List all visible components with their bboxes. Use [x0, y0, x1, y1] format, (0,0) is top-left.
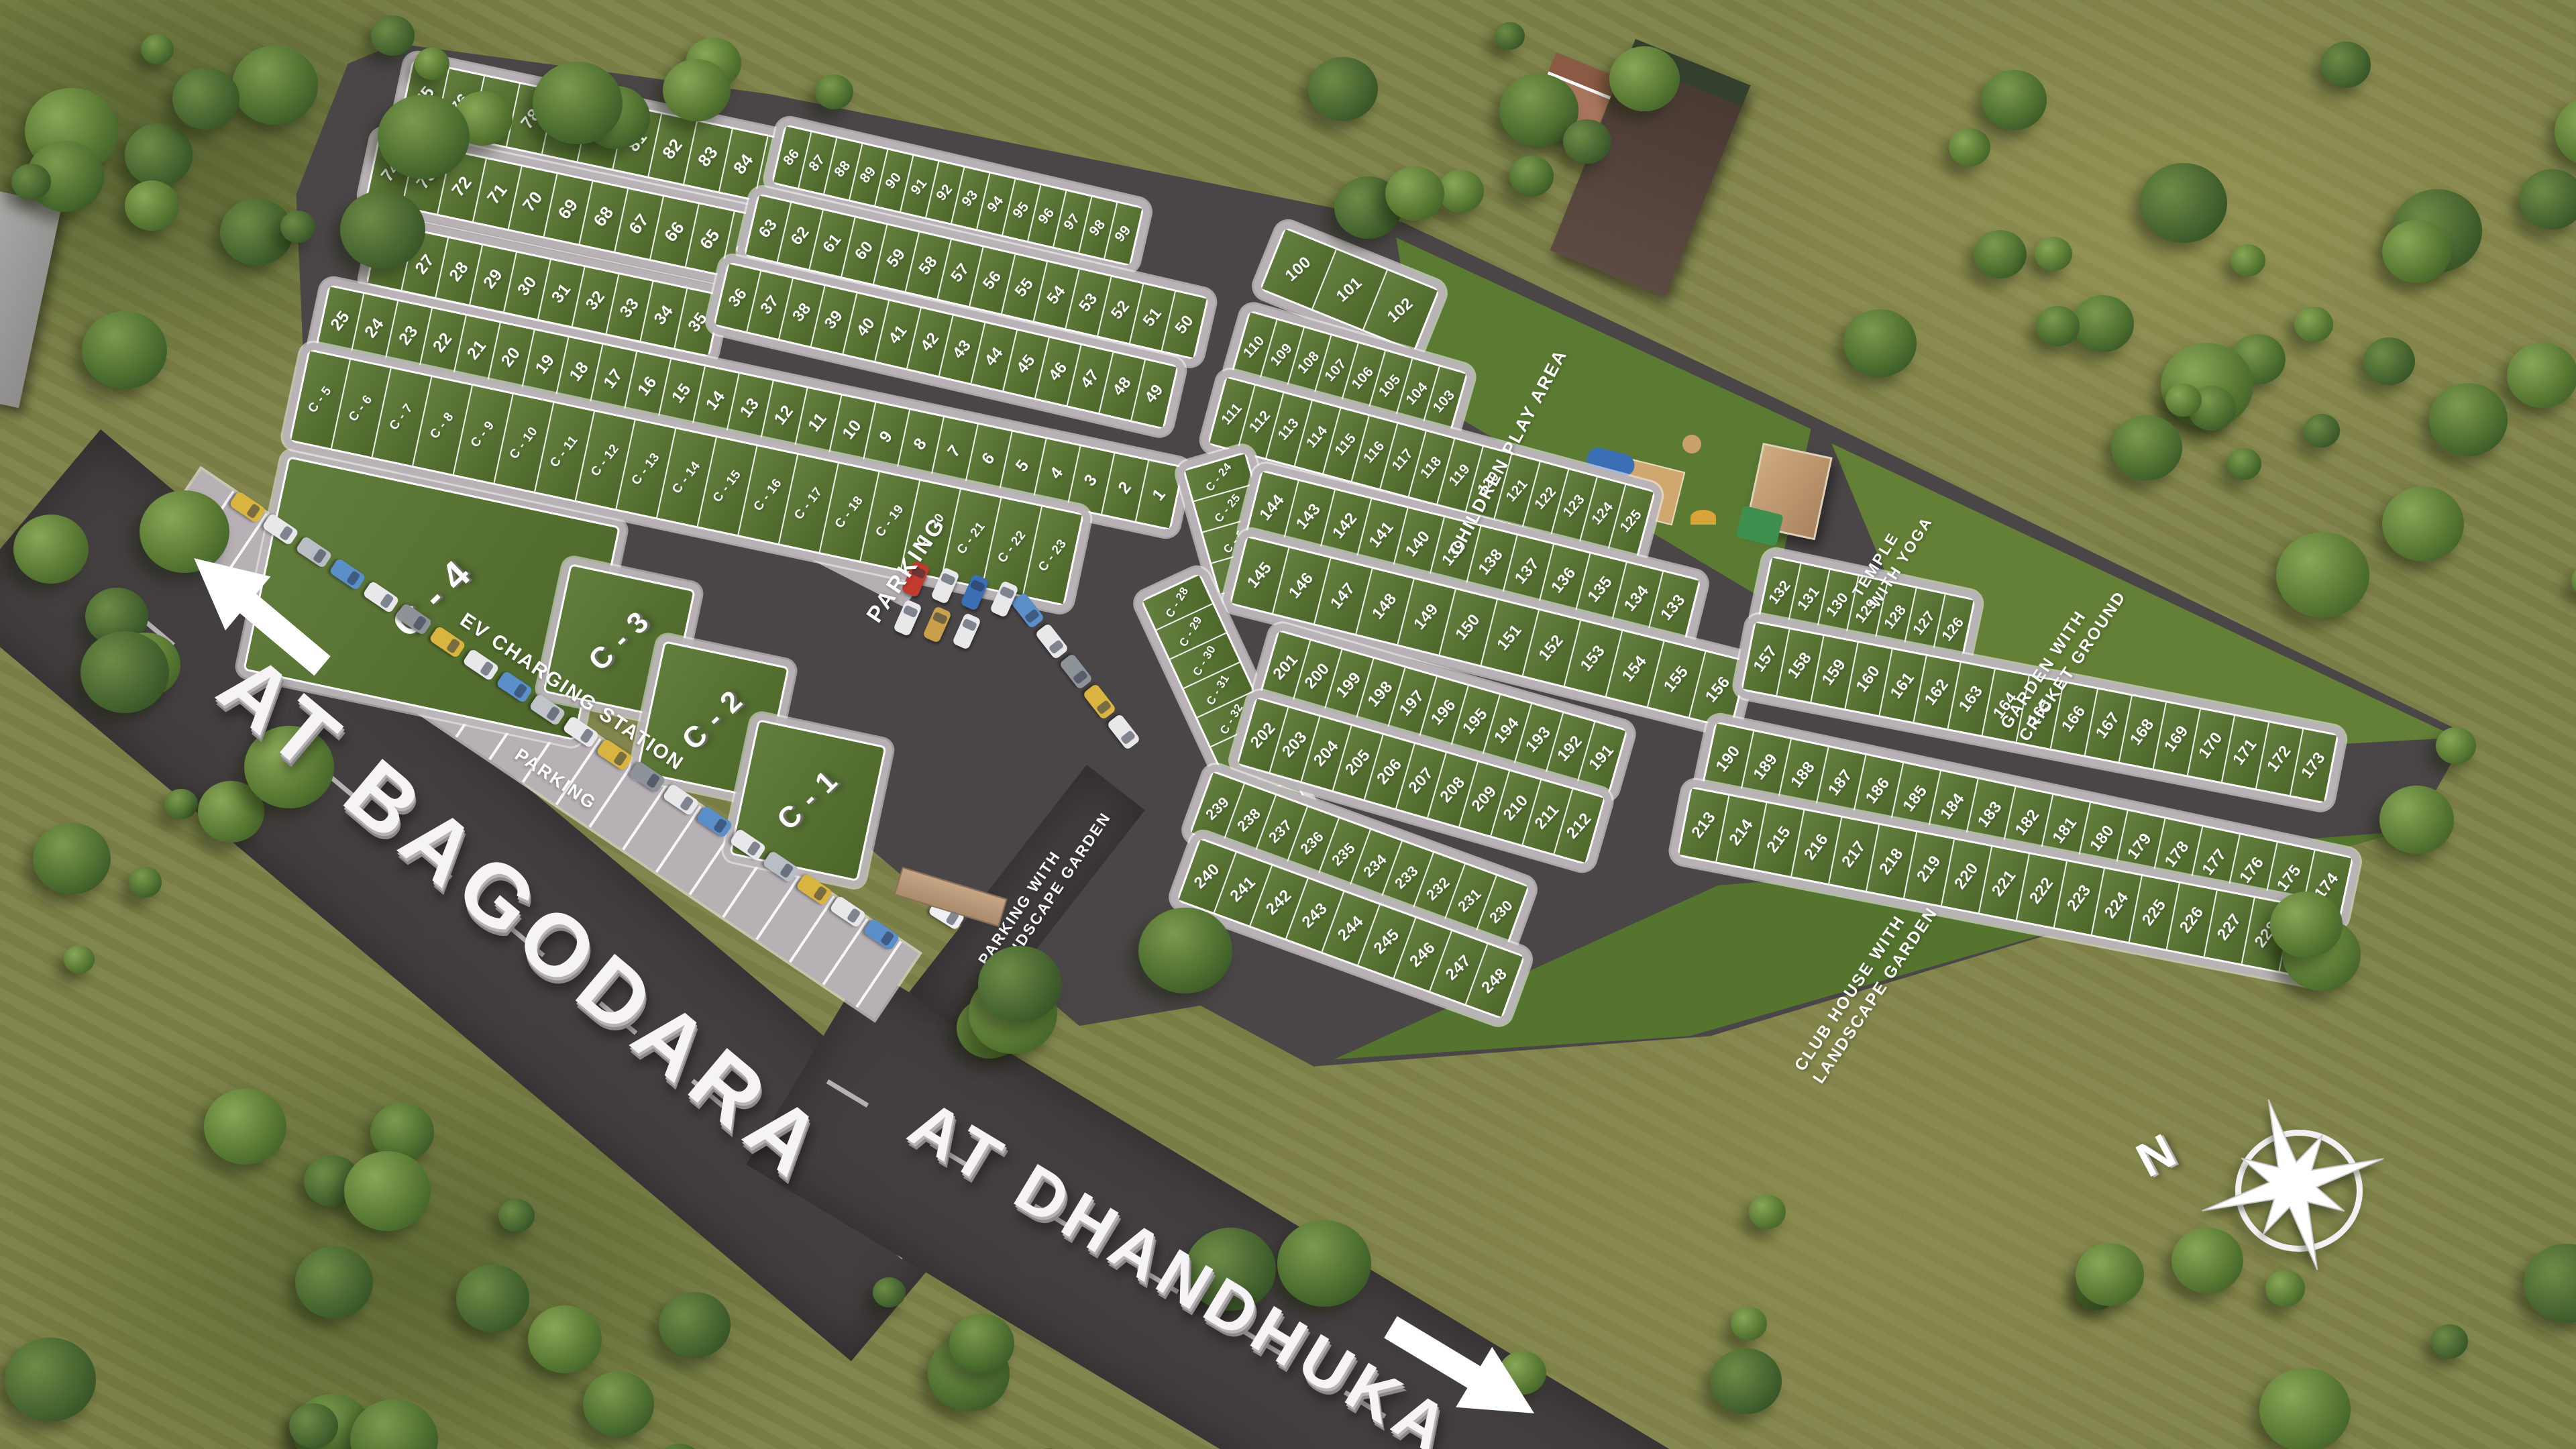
plot-number: 111 — [1218, 400, 1246, 429]
tree — [2294, 307, 2333, 342]
plot-number: 1 — [1148, 485, 1170, 504]
plot-number: C - 10 — [506, 424, 541, 462]
plot-number: 168 — [2127, 715, 2158, 749]
plot-number: 178 — [2161, 837, 2194, 871]
plot-number: 166 — [2058, 702, 2090, 736]
plot-number: 51 — [1139, 304, 1165, 330]
plot-number: 41 — [885, 321, 911, 347]
plot-number: 9 — [875, 427, 897, 446]
plot-number: 82 — [658, 135, 687, 164]
tree — [1949, 128, 1990, 166]
plot-number: 60 — [851, 237, 877, 264]
plot-number: 154 — [1619, 652, 1651, 686]
plot-c-1-label: C - 1 — [771, 764, 845, 837]
tree — [2076, 1243, 2144, 1306]
plot-number: 18 — [566, 358, 593, 385]
tree — [1711, 1348, 1782, 1413]
tree — [1438, 170, 1484, 213]
tree — [125, 180, 179, 231]
tree — [1749, 1195, 1786, 1228]
plot-number: 180 — [2086, 821, 2118, 855]
plot-number: 235 — [1328, 839, 1359, 869]
plot-number: 87 — [806, 152, 829, 174]
tree — [1495, 22, 1525, 50]
plot-number: 118 — [1417, 453, 1445, 482]
plot-number: 246 — [1406, 938, 1439, 971]
plot-number: 15 — [668, 380, 696, 407]
plot-number: 119 — [1446, 461, 1474, 489]
plot-number: 245 — [1371, 925, 1403, 958]
plot-number: C - 7 — [387, 401, 417, 433]
tree — [80, 631, 169, 713]
plot-number: 190 — [1713, 742, 1745, 775]
plot-number: 132 — [1765, 576, 1794, 607]
tree — [82, 311, 167, 390]
tree — [33, 823, 111, 894]
plot-number: 187 — [1825, 765, 1857, 799]
plot-number: 37 — [757, 292, 783, 318]
tree — [2072, 295, 2134, 352]
tree — [2140, 163, 2227, 244]
plot-number: 135 — [1585, 572, 1617, 606]
plot-number: 28 — [445, 258, 473, 285]
plot-number: 243 — [1298, 899, 1331, 932]
plot-number: 141 — [1366, 518, 1398, 551]
tree — [232, 46, 318, 125]
plot-number: 4 — [1046, 463, 1067, 482]
plot-number: 92 — [934, 181, 957, 204]
plot-number: 114 — [1303, 423, 1331, 451]
plot-number: C - 25 — [1212, 491, 1244, 525]
plot-number: 97 — [1061, 211, 1084, 233]
plot-number: 196 — [1428, 696, 1460, 729]
plot-number: 230 — [1486, 896, 1517, 926]
plot-number: 155 — [1660, 663, 1693, 696]
plot-number: 220 — [1951, 859, 1982, 893]
plot-number: 53 — [1075, 289, 1102, 315]
plot-number: 206 — [1373, 755, 1406, 788]
plot-number: 236 — [1297, 827, 1328, 857]
plot-number: 115 — [1332, 431, 1360, 459]
tree — [350, 1399, 438, 1449]
plot-number: 213 — [1688, 808, 1719, 842]
tree — [2231, 244, 2265, 276]
tree — [2111, 415, 2182, 480]
plot-number: 184 — [1937, 790, 1969, 823]
plot-number: 14 — [702, 386, 729, 414]
plot-number: 30 — [514, 272, 541, 300]
tree — [663, 59, 731, 121]
plot-number: 233 — [1391, 862, 1422, 892]
plot-number: 56 — [979, 267, 1006, 293]
plot-number: 189 — [1750, 750, 1782, 784]
plot-number: 238 — [1234, 804, 1265, 835]
plot-number: 47 — [1077, 366, 1103, 392]
plot-number: 212 — [1563, 810, 1596, 843]
plot-number: 207 — [1405, 764, 1438, 798]
plot-number: 200 — [1301, 659, 1334, 693]
plot-number: 8 — [910, 434, 931, 453]
plot-number: 69 — [554, 195, 583, 223]
plot-number: 71 — [483, 180, 512, 209]
plot-number: 143 — [1293, 500, 1325, 533]
plot-number: 5 — [1012, 455, 1034, 475]
plot-number: 221 — [1988, 867, 2020, 900]
plot-number: 176 — [2236, 853, 2268, 887]
plot-number: 145 — [1244, 559, 1276, 592]
plot-number: 86 — [781, 146, 804, 168]
plot-number: C - 11 — [547, 433, 581, 470]
plot-number: 170 — [2195, 729, 2226, 762]
plot-number: 244 — [1334, 912, 1367, 945]
tree — [1138, 908, 1232, 994]
plot-number: 215 — [1763, 823, 1794, 857]
tree — [2382, 486, 2464, 562]
plot-number: 148 — [1368, 590, 1401, 623]
plot-number: 239 — [1202, 793, 1233, 823]
plot-number: 101 — [1333, 273, 1366, 306]
plot-number: 40 — [853, 314, 879, 340]
plot-number: 179 — [2124, 829, 2156, 863]
tree — [2520, 169, 2576, 229]
plot-number: 16 — [634, 372, 661, 400]
plot-number: 171 — [2229, 735, 2261, 769]
plot-number: 195 — [1459, 704, 1492, 738]
plot-number: 99 — [1112, 222, 1135, 245]
tree — [456, 1265, 529, 1332]
tree — [1385, 166, 1444, 221]
plot-number: 121 — [1503, 476, 1531, 505]
plot-number: 113 — [1275, 415, 1303, 443]
plot-number: 21 — [463, 336, 490, 364]
plot-number: 234 — [1360, 851, 1391, 881]
tree — [125, 123, 193, 186]
plot-number: 48 — [1109, 373, 1135, 399]
plot-number: 61 — [819, 230, 845, 256]
plot-number: 175 — [2273, 861, 2306, 895]
plot-number: 124 — [1589, 499, 1617, 528]
tree — [657, 1444, 703, 1449]
tree — [533, 62, 623, 144]
plot-number: 237 — [1265, 816, 1296, 846]
tree — [2431, 1324, 2468, 1358]
tree — [2265, 1270, 2306, 1307]
tree — [528, 1305, 602, 1374]
plot-number: 216 — [1801, 830, 1832, 863]
tree — [1982, 70, 2047, 130]
plot-number: 137 — [1511, 554, 1544, 588]
plot-number: 39 — [820, 307, 847, 333]
tree — [1509, 156, 1554, 197]
tree — [140, 490, 229, 573]
plot-number: 65 — [696, 225, 724, 254]
tree — [2259, 1368, 2351, 1449]
tree — [2507, 343, 2576, 409]
plot-number: 42 — [917, 329, 943, 355]
plot-number: 248 — [1478, 964, 1511, 997]
plot-number: 57 — [947, 260, 973, 286]
plot-number: 62 — [787, 223, 813, 249]
plot-number: 127 — [1909, 607, 1939, 638]
plot-number: 34 — [650, 301, 678, 329]
plot-number: 240 — [1191, 859, 1224, 892]
tree — [1843, 309, 1917, 377]
tree — [1609, 46, 1680, 111]
plot-number: 35 — [684, 309, 712, 336]
plot-number: C - 22 — [995, 528, 1029, 566]
plot-number: 88 — [832, 158, 855, 180]
plot-number: 136 — [1548, 563, 1580, 597]
tree — [659, 1292, 731, 1358]
plot-number: 210 — [1499, 791, 1532, 824]
plot-number: 2 — [1114, 478, 1136, 497]
plot-number: C - 12 — [588, 441, 623, 480]
plot-number: 227 — [2213, 910, 2245, 944]
tree — [289, 1403, 338, 1448]
plot-number: 55 — [1011, 274, 1037, 301]
plot-number: 199 — [1332, 668, 1365, 702]
plot-number: 43 — [949, 336, 975, 362]
tree — [2555, 97, 2576, 166]
plot-number: 50 — [1171, 311, 1197, 337]
plot-number: 24 — [361, 314, 388, 341]
tree — [2035, 237, 2072, 271]
plot-number: 110 — [1240, 333, 1269, 361]
plot-number: 152 — [1536, 631, 1568, 665]
plot-number: 52 — [1108, 297, 1134, 323]
plot-number: 122 — [1532, 484, 1560, 513]
plot-number: 173 — [2298, 749, 2329, 782]
plot-number: 193 — [1522, 722, 1555, 756]
tree — [2165, 384, 2201, 417]
plot-number: C - 6 — [346, 392, 376, 425]
plot-number: 66 — [660, 217, 689, 246]
plot-number: 104 — [1403, 379, 1431, 408]
tree — [498, 1199, 535, 1232]
tree — [11, 164, 51, 200]
tree — [141, 34, 173, 64]
plot-number: C - 21 — [954, 519, 988, 557]
tree — [1308, 57, 1378, 121]
plot-number: 156 — [1702, 673, 1734, 706]
tree — [1563, 119, 1611, 164]
plot-number: 223 — [2063, 881, 2095, 915]
plot-number: 214 — [1725, 816, 1757, 849]
plot-number: 93 — [959, 187, 982, 210]
plot-number: 211 — [1532, 800, 1564, 833]
plot-number: 89 — [857, 163, 880, 186]
tree — [978, 946, 1061, 1022]
plot-number: 157 — [1750, 642, 1782, 676]
plot-number: 191 — [1585, 741, 1618, 774]
plot-number: 225 — [2139, 896, 2170, 929]
tree — [378, 95, 470, 179]
plot-c-2-label: C - 2 — [676, 684, 750, 757]
tree — [1974, 230, 2027, 278]
plot-number: 7 — [944, 441, 965, 461]
tree — [2429, 383, 2508, 455]
plot-number: 94 — [985, 193, 1008, 215]
plot-number: 44 — [981, 343, 1007, 370]
tree — [172, 68, 239, 129]
plot-number: 90 — [883, 169, 906, 192]
plot-number: 38 — [789, 299, 815, 325]
plot-number: 106 — [1349, 364, 1377, 392]
plot-number: 125 — [1617, 506, 1645, 535]
plot-number: 19 — [531, 350, 559, 378]
tree — [2321, 42, 2371, 88]
tree — [873, 1277, 906, 1307]
tree — [815, 74, 853, 109]
plot-number: 31 — [547, 280, 575, 307]
plot-number: C - 17 — [792, 484, 826, 523]
plot-number: 22 — [429, 329, 456, 356]
plot-c-3-label: C - 3 — [582, 604, 657, 678]
plot-number: 108 — [1295, 347, 1323, 376]
plot-number: 59 — [883, 245, 909, 271]
plot-number: C - 23 — [1036, 537, 1070, 575]
plot-number: 202 — [1247, 718, 1280, 752]
plot-number: 11 — [804, 409, 831, 435]
tree — [2363, 337, 2415, 385]
plot-number: 95 — [1010, 199, 1033, 221]
plot-number: C - 15 — [710, 467, 745, 505]
plot-number: 130 — [1823, 589, 1852, 620]
plot-number: 6 — [978, 449, 1000, 468]
plot-number: 232 — [1423, 873, 1454, 904]
plot-number: 182 — [2012, 806, 2044, 839]
plot-number: 10 — [839, 416, 866, 443]
plot-number: 169 — [2161, 722, 2192, 755]
plot-number: 186 — [1862, 773, 1894, 807]
plot-number: 183 — [1974, 798, 2006, 831]
plot-number: 54 — [1043, 282, 1069, 308]
play-table — [1682, 435, 1701, 453]
plot-number: 68 — [589, 202, 618, 231]
plot-number: 160 — [1853, 662, 1884, 696]
plot-number: 224 — [2101, 888, 2133, 922]
plot-number: 209 — [1468, 782, 1501, 816]
plot-number: C - 19 — [873, 502, 907, 540]
plot-number: 96 — [1036, 205, 1059, 227]
tree — [295, 1246, 373, 1318]
plot-number: 134 — [1621, 582, 1653, 615]
plot-number: 83 — [694, 142, 722, 171]
tree — [2571, 565, 2576, 596]
tree — [340, 191, 425, 269]
plot-number: 198 — [1364, 678, 1397, 711]
plot-number: 131 — [1794, 582, 1823, 613]
plot-number: 185 — [1899, 782, 1931, 815]
plot-number: C - 8 — [427, 410, 457, 442]
plot-number: 144 — [1256, 490, 1289, 524]
plot-number: 91 — [908, 175, 931, 198]
tree — [2270, 892, 2343, 958]
plot-number: 13 — [736, 394, 763, 421]
plot-number: C - 13 — [629, 450, 663, 488]
plot-number: C - 5 — [306, 384, 335, 416]
plot-number: C - 16 — [751, 476, 785, 514]
plot-number: 161 — [1887, 669, 1919, 702]
plot-number: 58 — [915, 252, 941, 278]
plot-number: 197 — [1396, 686, 1429, 720]
plot-number: 25 — [327, 307, 354, 334]
plot-number: 63 — [755, 215, 781, 241]
tree — [2379, 786, 2454, 854]
plot-number: 45 — [1013, 351, 1039, 377]
tree — [204, 1089, 286, 1165]
plot-number: 109 — [1267, 340, 1295, 369]
plot-number: 23 — [395, 321, 423, 349]
plot-number: 241 — [1226, 873, 1259, 906]
tree — [1731, 1307, 1767, 1340]
plot-number: 36 — [724, 284, 751, 311]
plot-number: 194 — [1491, 714, 1523, 747]
plot-number: 20 — [497, 343, 525, 371]
plot-number: 204 — [1310, 737, 1343, 770]
tree — [2276, 532, 2369, 618]
building-gray — [0, 188, 62, 408]
plot-number: 205 — [1342, 746, 1375, 780]
plot-number: 177 — [2198, 845, 2231, 879]
plot-number: 159 — [1819, 655, 1850, 689]
tree — [2524, 1244, 2576, 1323]
plot-number: 150 — [1452, 610, 1485, 644]
plot-number: 32 — [582, 286, 609, 314]
tree — [2436, 727, 2476, 764]
plot-number: 192 — [1554, 732, 1587, 765]
site-plan-render: { "site": { "roads": { "bagodara": "AT B… — [0, 0, 2576, 1449]
plot-number: 126 — [1938, 613, 1968, 644]
plot-number: 138 — [1475, 545, 1507, 579]
tree — [2382, 220, 2451, 284]
plot-number: 107 — [1322, 356, 1350, 384]
tree — [371, 15, 414, 55]
tree — [5, 1338, 96, 1421]
plot-number: 188 — [1787, 757, 1819, 791]
tree — [164, 789, 197, 819]
plot-number: 3 — [1080, 470, 1102, 490]
plot-number: 219 — [1913, 852, 1945, 885]
plot-number: 217 — [1838, 837, 1870, 871]
plot-number: 33 — [616, 294, 643, 321]
play-dome — [1690, 510, 1716, 525]
plot-number: 208 — [1436, 773, 1469, 806]
plot-number: 162 — [1921, 676, 1953, 709]
tree — [583, 1371, 654, 1436]
tree — [2227, 448, 2261, 480]
plot-number: 98 — [1087, 216, 1110, 239]
plot-number: 12 — [770, 401, 798, 429]
plot-number: 116 — [1360, 438, 1388, 466]
plot-number: 163 — [1955, 682, 1987, 716]
tree — [2036, 306, 2080, 346]
tree — [280, 211, 315, 243]
tree — [13, 515, 89, 584]
plot-number: 218 — [1876, 845, 1907, 878]
plot-number: 149 — [1410, 600, 1442, 634]
tree — [129, 867, 162, 898]
plot-number: 247 — [1442, 951, 1475, 984]
plot-number: 153 — [1577, 642, 1609, 676]
plot-number: 117 — [1389, 446, 1417, 474]
plot-number: 142 — [1329, 508, 1361, 542]
plot-number: 123 — [1560, 491, 1588, 520]
tree — [64, 945, 95, 973]
plot-number: C - 18 — [832, 493, 866, 531]
plot-number: 49 — [1141, 380, 1167, 407]
plot-number: 226 — [2176, 903, 2208, 936]
